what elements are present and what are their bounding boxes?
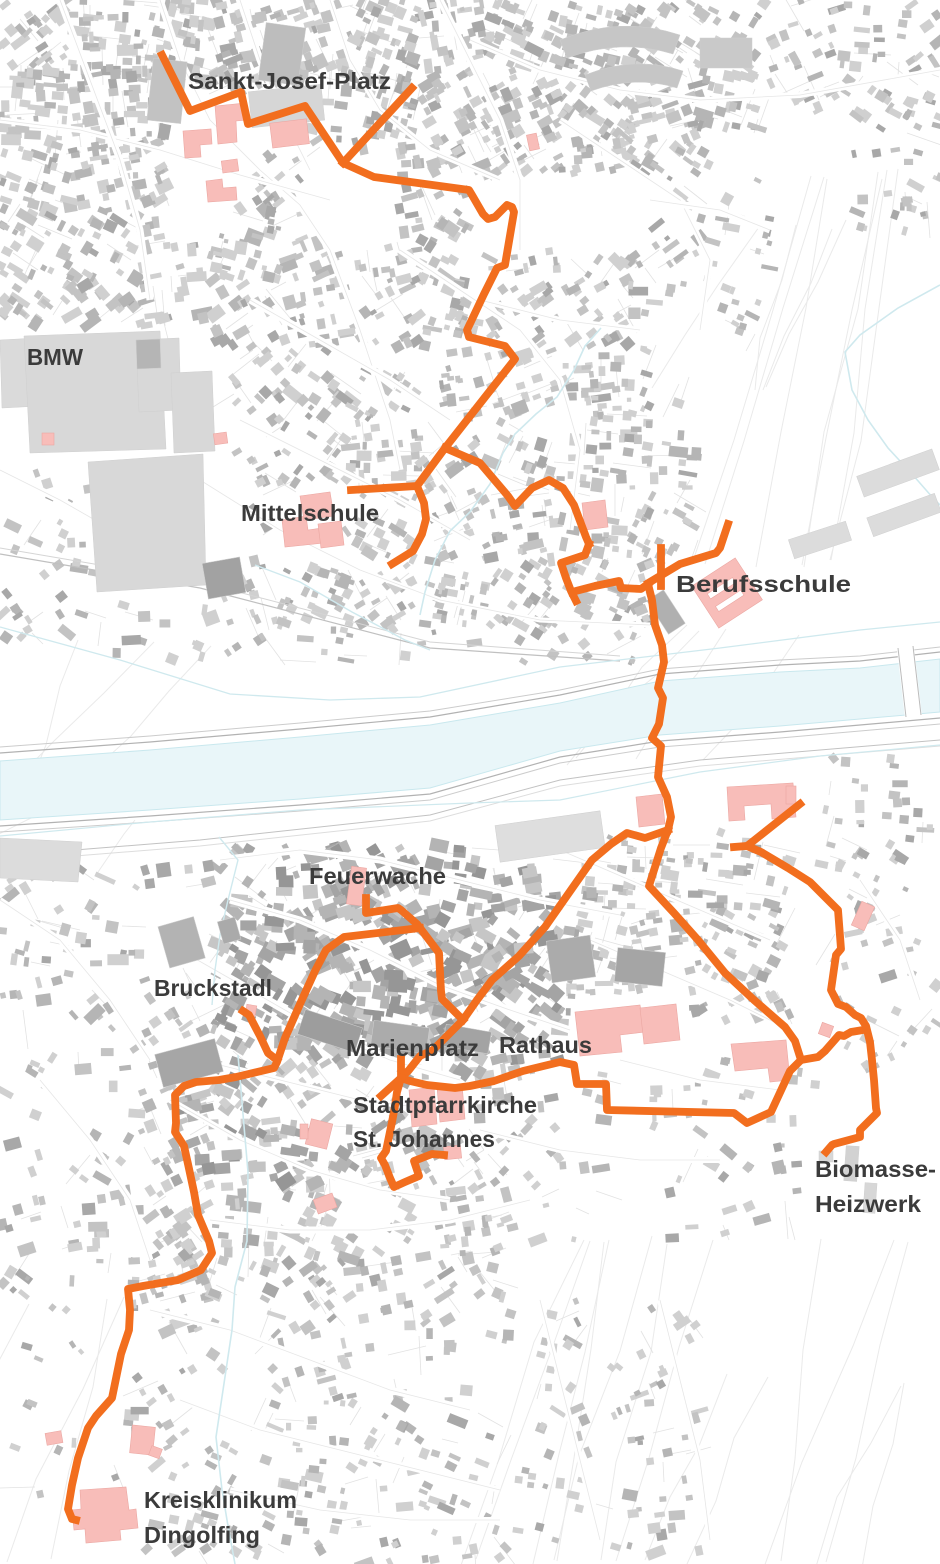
svg-text:Biomasse-: Biomasse- <box>815 1156 936 1182</box>
svg-text:Mittelschule: Mittelschule <box>241 500 379 526</box>
svg-text:Kreisklinikum: Kreisklinikum <box>144 1487 297 1513</box>
svg-text:Heizwerk: Heizwerk <box>815 1191 921 1217</box>
svg-text:Dingolfing: Dingolfing <box>144 1522 260 1548</box>
svg-text:Sankt-Josef-Platz: Sankt-Josef-Platz <box>188 68 391 94</box>
svg-text:BMW: BMW <box>27 344 83 370</box>
svg-text:Marienplatz: Marienplatz <box>346 1035 479 1061</box>
svg-text:St. Johannes: St. Johannes <box>353 1126 495 1152</box>
svg-text:Feuerwache: Feuerwache <box>309 863 446 889</box>
svg-text:Rathaus: Rathaus <box>499 1032 592 1058</box>
svg-text:Stadtpfarrkirche: Stadtpfarrkirche <box>353 1092 537 1118</box>
svg-text:Berufsschule: Berufsschule <box>676 571 851 597</box>
svg-text:Bruckstadl: Bruckstadl <box>154 975 272 1001</box>
